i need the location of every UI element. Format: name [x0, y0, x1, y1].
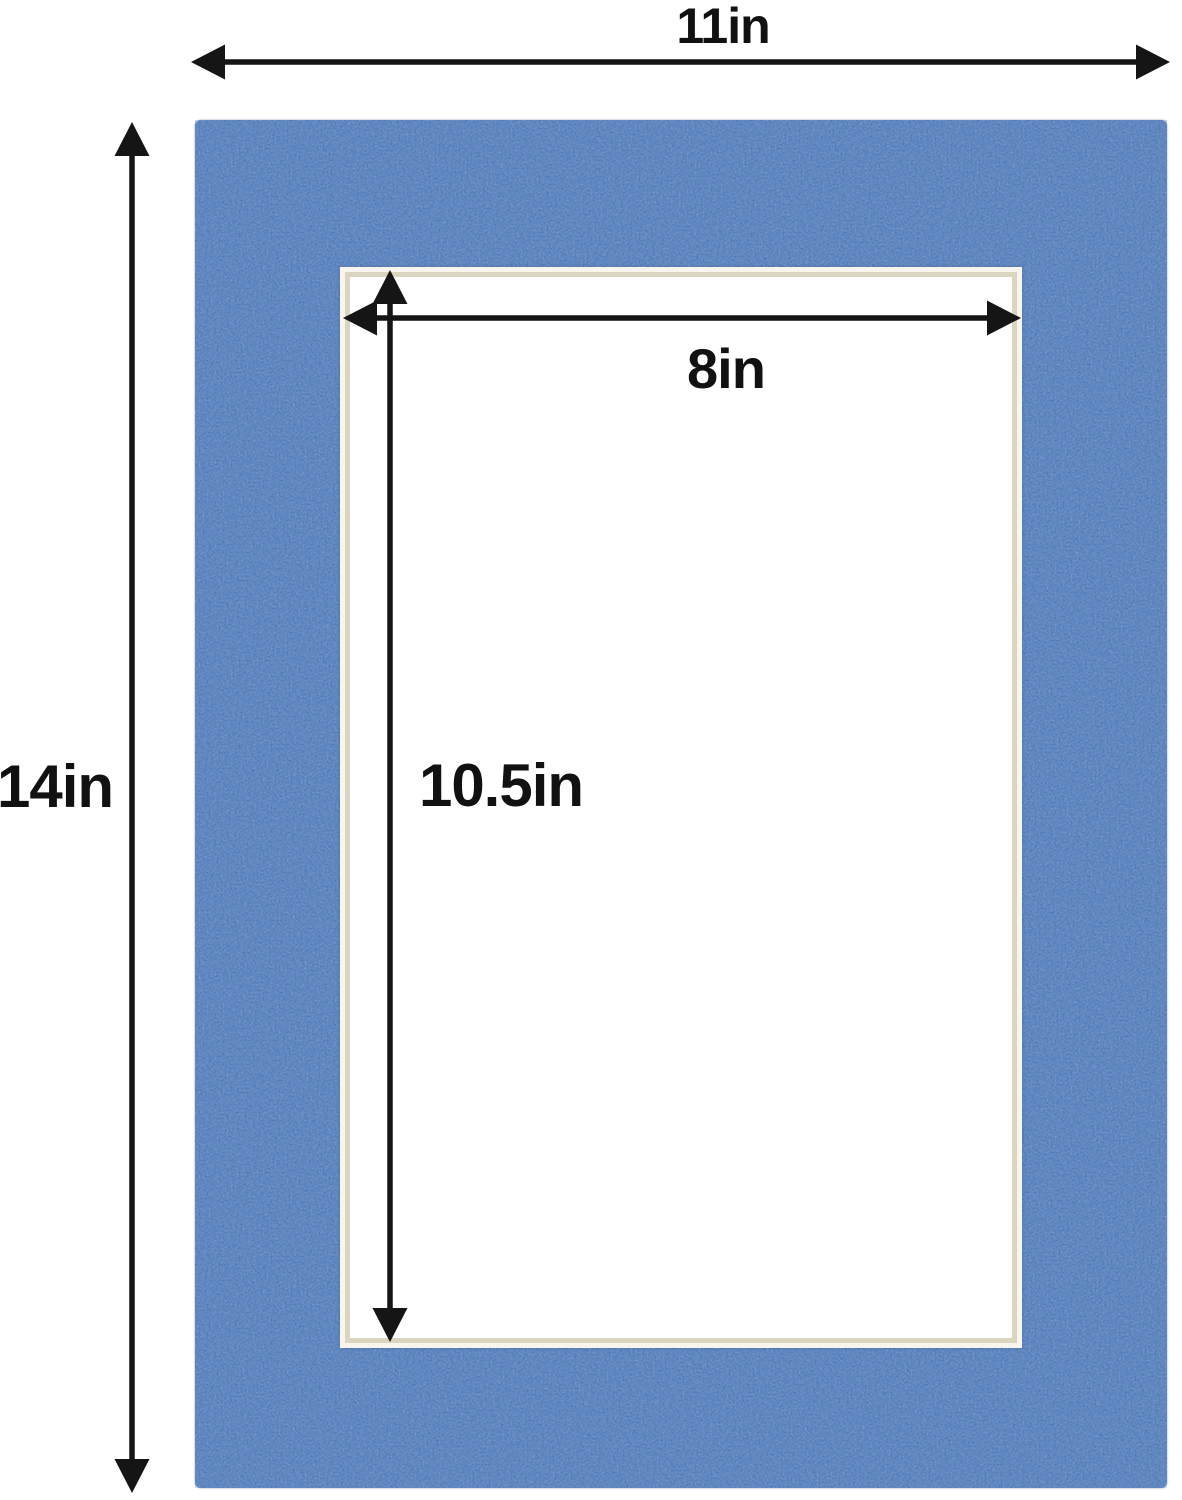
- mat-board: [195, 120, 1167, 1488]
- opening-height-label: 10.5in: [419, 756, 583, 816]
- outer-height-label: 14in: [0, 757, 113, 817]
- mat-dimension-diagram: 11in 14in 8in 10.5in: [0, 0, 1182, 1500]
- opening-width-label: 8in: [687, 341, 765, 397]
- outer-height-arrow: [115, 122, 150, 1493]
- outer-width-label: 11in: [676, 1, 769, 51]
